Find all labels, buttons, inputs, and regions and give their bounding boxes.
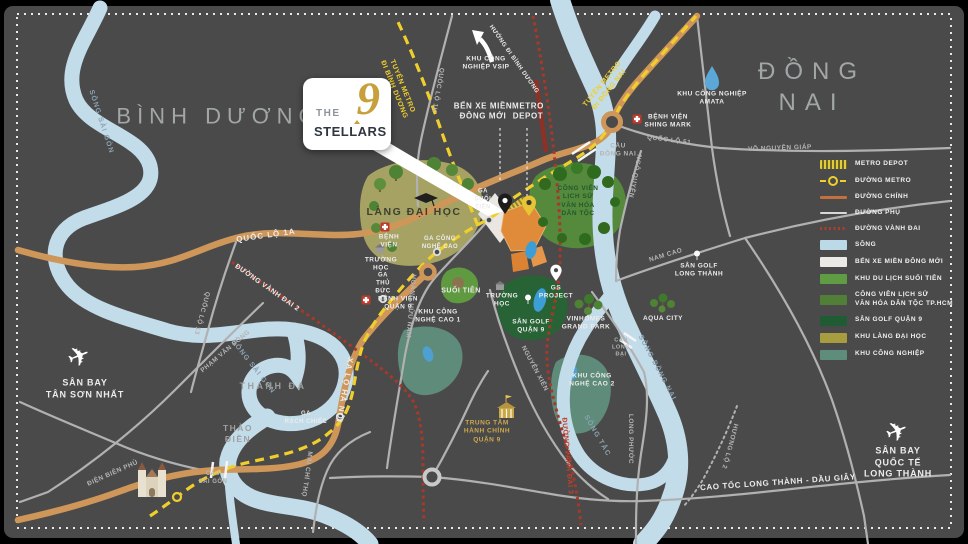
white-pin-icon (550, 265, 561, 281)
area-label-thanh-da: THANH ĐA (240, 381, 307, 393)
logo-nine: 9 (357, 72, 381, 126)
poi-label-san-bay-long-thanh: SÂN BAY QUỐC TẾ LONG THÀNH (863, 445, 933, 480)
legend-item: CÔNG VIÊN LỊCH SỬ VĂN HÓA DÂN TỘC TP.HCM (820, 291, 954, 309)
roundabout-q9 (425, 470, 440, 485)
legend-label: ĐƯỜNG VÀNH ĐAI (855, 225, 921, 234)
legend-label: SÔNG (855, 241, 876, 250)
legend-item: SÔNG (820, 240, 954, 250)
poi-label-ga-cong-nghe-cao: GA CÔNG NGHỆ CAO (422, 236, 458, 252)
poi-label-truong-hoc-2: TRƯỜNG HỌC (486, 293, 518, 310)
government-building-icon (497, 395, 516, 418)
legend-item: BẾN XE MIỀN ĐÔNG MỚI (820, 257, 954, 267)
legend-item: KHU CÔNG NGHIỆP (820, 350, 954, 360)
legend-swatch-metro-depot (820, 160, 847, 169)
legend-swatch-main-road (820, 196, 847, 200)
poi-label-cau-sai-gon: CẦU SÀI GÒN (199, 471, 228, 487)
legend-swatch-golf (820, 316, 847, 326)
church-icon (138, 462, 166, 497)
legend-swatch-river (820, 240, 847, 250)
poi-label-gs-project: GS PROJECT (539, 285, 573, 302)
area-label-suoi-tien: SUỐI TIÊN (441, 286, 481, 295)
hospital-icon (381, 223, 390, 232)
legend-label: BẾN XE MIỀN ĐÔNG MỚI (855, 258, 943, 267)
legend-swatch-ring-road (820, 227, 847, 230)
logo-stellars: STELLARS (314, 124, 387, 139)
poi-label-ga-suoi-tien: GA SUỐI TIÊN (475, 188, 492, 211)
area-label-cong-vien: CÔNG VIÊN LỊCH SỬ VĂN HÓA DÂN TỘC (558, 185, 599, 219)
area-label-cnc-1: KHU CÔNG NGHỆ CAO 1 (415, 309, 460, 326)
poi-label-ben-xe: BẾN XE MIỀN ĐÔNG MỚI (454, 102, 513, 123)
logo-a-accent (354, 120, 360, 124)
map-legend: METRO DEPOT ĐƯỜNG METRO ĐƯỜNG CHÍNH ĐƯỜN… (820, 160, 954, 367)
poi-label-san-bay-tsn: SÂN BAY TÂN SƠN NHẤT (46, 377, 124, 400)
poi-label-trung-tam-hanh-chinh: TRUNG TÂM HÀNH CHÍNH QUẬN 9 (464, 419, 510, 444)
area-label-cnc-2: KHU CÔNG NGHỆ CAO 2 (569, 373, 614, 390)
legend-label: ĐƯỜNG METRO (855, 177, 911, 186)
map-poster: BÌNH DƯƠNG ĐỒNG NAI SÔNG SÀI GÒN SÔNG SÀ… (0, 0, 968, 544)
logo-the: THE (316, 108, 341, 119)
legend-label: CÔNG VIÊN LỊCH SỬ VĂN HÓA DÂN TỘC TP.HCM (855, 291, 953, 309)
poi-label-benh-vien: BỆNH VIỆN (379, 234, 399, 251)
legend-label: KHU LÀNG ĐẠI HỌC (855, 333, 927, 342)
legend-item: KHU DU LỊCH SUỐI TIÊN (820, 274, 954, 284)
poi-label-aqua-city: AQUA CITY (643, 315, 683, 323)
legend-swatch-suoi-tien (820, 274, 847, 284)
poi-label-ga-thu-duc: GA THỦ ĐỨC (375, 272, 390, 295)
legend-item: METRO DEPOT (820, 160, 954, 169)
area-label-san-golf-q9: SÂN GOLF QUẬN 9 (512, 319, 550, 336)
legend-label: ĐƯỜNG CHÍNH (855, 193, 908, 202)
poi-label-cau-long-dai: CẦU LONG ĐẠI (612, 337, 630, 358)
metro-station (173, 493, 181, 501)
area-label-thao-dien: THẢO ĐIỀN (223, 423, 253, 445)
water-drop-icon (705, 66, 719, 90)
legend-item: KHU LÀNG ĐẠI HỌC (820, 333, 954, 343)
legend-label: SÂN GOLF QUẬN 9 (855, 316, 922, 325)
poi-label-cau-dong-nai: CẦU ĐỒNG NAI (600, 143, 637, 160)
legend-item: ĐƯỜNG CHÍNH (820, 193, 954, 202)
legend-swatch-history-park (820, 295, 847, 305)
legend-label: KHU DU LỊCH SUỐI TIÊN (855, 275, 942, 284)
metro-station (486, 217, 492, 223)
poi-label-metro-depot: METRO DEPOT (512, 102, 544, 123)
poi-label-vsip: KHU CÔNG NGHIỆP VSIP (463, 56, 510, 73)
road-label-long-phuoc: LONG PHƯỚC (626, 414, 634, 464)
label-pointers (500, 128, 527, 200)
legend-swatch-bus-station (820, 257, 847, 267)
legend-item: ĐƯỜNG METRO (820, 176, 954, 186)
hospital-icon (633, 115, 642, 124)
golf-ball-icon (694, 251, 700, 261)
region-label-dong-nai: ĐỒNG NAI (734, 56, 890, 118)
poi-label-truong-hoc-1: TRƯỜNG HỌC (365, 257, 397, 274)
legend-swatch-university (820, 333, 847, 343)
area-label-lang-dai-hoc: LÀNG ĐẠI HỌC (367, 206, 462, 220)
region-label-binh-duong: BÌNH DƯƠNG (116, 103, 321, 132)
legend-label: METRO DEPOT (855, 160, 908, 169)
legend-item: SÂN GOLF QUẬN 9 (820, 316, 954, 326)
roundabout-xlhn (422, 266, 435, 279)
legend-swatch-minor-road (820, 212, 847, 214)
legend-item: ĐƯỜNG PHỤ (820, 209, 954, 218)
legend-swatch-metro-line (820, 176, 847, 186)
legend-item: ĐƯỜNG VÀNH ĐAI (820, 225, 954, 234)
school-icon (495, 281, 505, 290)
legend-label: ĐƯỜNG PHỤ (855, 209, 900, 218)
poi-label-vinhomes: VINHOMES GRAND PARK (562, 316, 611, 333)
poi-label-shing-mark: BỆNH VIỆN SHING MARK (645, 114, 692, 131)
hospital-icon (362, 296, 371, 305)
poi-label-ga-rach-chiec: GA RẠCH CHIẾC (285, 411, 328, 427)
legend-label: KHU CÔNG NGHIỆP (855, 350, 925, 359)
legend-swatch-industrial (820, 350, 847, 360)
the-9-stellars-logo: THE 9 STELLARS (303, 78, 391, 150)
poi-label-san-golf-long-thanh: SÂN GOLF LONG THÀNH (675, 263, 723, 280)
roundabout-dong-nai (604, 114, 621, 131)
poi-label-amata: KHU CÔNG NGHIỆP AMATA (677, 91, 747, 108)
